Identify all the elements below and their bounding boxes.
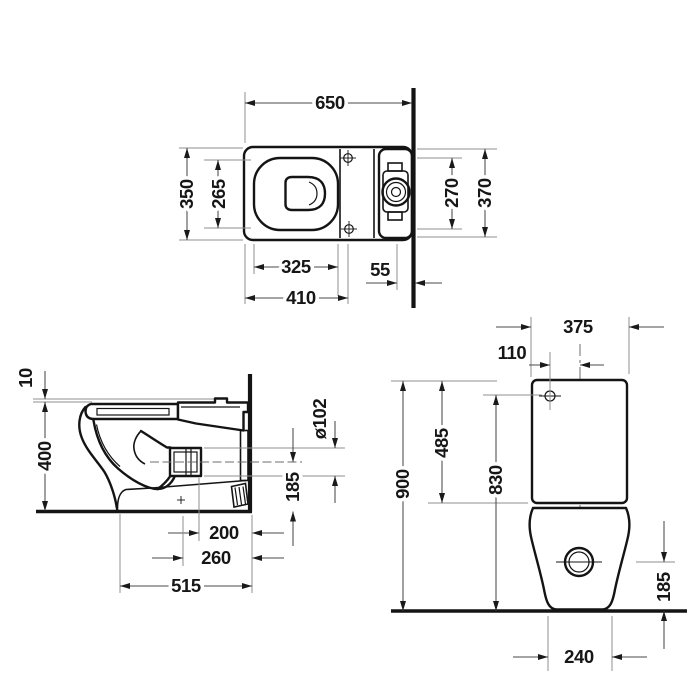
dim-front-inlet-offset: 110	[498, 342, 527, 363]
toilet-dimension-drawing: 650 350 265 270 370	[0, 0, 700, 700]
dim-top-fixing-holes-distance: 410	[286, 287, 316, 308]
sump-section	[134, 431, 145, 464]
dim-10: 10	[15, 368, 45, 399]
dim-top-seat-opening-length: 325	[281, 256, 311, 277]
dim-front-outlet-center-height: 185	[653, 572, 674, 602]
dim-front-total-height: 900	[392, 469, 413, 499]
dim-side-outlet-to-wall: 200	[209, 522, 239, 543]
drain-grate	[232, 484, 249, 508]
dim-side-trap-to-wall: 260	[201, 547, 231, 568]
dim-400: 400	[34, 402, 55, 511]
cistern-base-section	[178, 399, 248, 431]
dim-front-base-width: 240	[564, 646, 594, 667]
dim-55: 55	[366, 244, 442, 290]
dim-650: 650	[245, 92, 412, 143]
center-marker	[177, 496, 185, 504]
dim-240: 240	[513, 616, 647, 671]
flush-pipe	[241, 431, 249, 481]
side-view: 10 400 ø102 185 200 260	[15, 368, 345, 596]
dim-top-total-depth: 650	[315, 92, 345, 113]
dim-side-total-depth: 515	[171, 575, 201, 596]
dim-top-bowl-width: 350	[176, 179, 197, 209]
dim-top-seat-opening-width: 265	[208, 179, 229, 209]
bowl-front	[530, 508, 630, 610]
outlet-pipe	[150, 448, 302, 476]
seat-section	[86, 404, 179, 419]
bowl-front-profile	[79, 407, 117, 511]
dim-top-fixing-holes-spacing: 270	[441, 178, 462, 208]
front-view: 375 110 900 485 830 185	[391, 316, 687, 671]
dim-side-rim-height: 400	[34, 441, 55, 471]
technical-drawing: 650 350 265 270 370	[0, 0, 700, 700]
dim-front-inlet-height: 830	[485, 465, 506, 495]
dim-top-rear-gap: 55	[370, 259, 390, 280]
dim-270: 270	[417, 158, 462, 229]
trap-upper	[141, 431, 170, 448]
dim-185-side: 185	[282, 428, 303, 546]
dim-side-seat-gap: 10	[15, 368, 36, 388]
dim-485: 485	[428, 381, 528, 503]
dim-front-tank-width: 375	[563, 316, 593, 337]
pedestal-top-line	[118, 481, 247, 509]
top-view: 650 350 265 270 370	[176, 88, 497, 308]
dim-185-front: 185	[636, 521, 675, 649]
dim-top-tank-width: 370	[474, 178, 495, 208]
dim-900: 900	[391, 381, 497, 611]
dim-side-outlet-center-height: 185	[282, 472, 303, 502]
dim-side-outlet-diameter: ø102	[309, 399, 330, 440]
dim-front-tank-top-height: 485	[431, 428, 452, 458]
